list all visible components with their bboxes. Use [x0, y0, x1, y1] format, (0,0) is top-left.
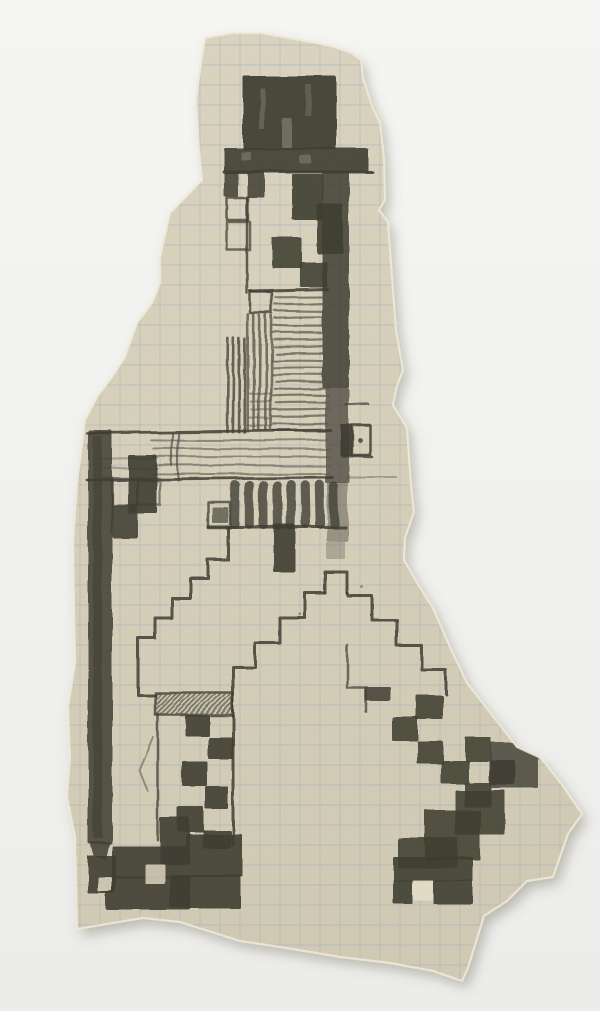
collar-block-mid — [247, 172, 265, 198]
left-leg-check-4 — [205, 786, 228, 809]
right-hand-dot — [358, 438, 363, 443]
sketch-canvas — [0, 0, 600, 1011]
left-foot-notch-1 — [98, 877, 112, 892]
left-foot-mass-4 — [160, 818, 190, 864]
hat-crown-streak-1 — [282, 118, 292, 148]
speck-1 — [299, 613, 302, 616]
hat-brim-speck-2 — [299, 155, 311, 163]
belt-left-dark — [212, 507, 228, 523]
left-foot-mass-6 — [170, 874, 240, 908]
staff-core — [93, 436, 102, 838]
right-leg-check-3 — [417, 741, 443, 764]
right-foot-tab-1 — [393, 880, 412, 904]
right-leg-check-0 — [365, 687, 391, 701]
collar-block-left — [224, 172, 238, 197]
speck-2 — [361, 586, 364, 589]
left-leg-check-3 — [182, 761, 207, 786]
right-leg-check-5 — [441, 760, 469, 784]
torso-top-line — [250, 289, 327, 291]
left-foot-notch-2 — [145, 864, 165, 884]
right-leg-check-2 — [392, 717, 418, 741]
left-foot-mass-5 — [186, 834, 242, 876]
scanned-sketch-page — [0, 0, 600, 1011]
right-foot-notch — [412, 880, 433, 900]
right-hand-dark — [340, 424, 352, 456]
chest-check-1 — [272, 238, 302, 268]
right-hand-top-line — [346, 404, 368, 405]
right-foot-bar — [393, 857, 473, 881]
chest-check-2 — [300, 262, 327, 287]
shoulder-band-scribble — [326, 542, 345, 559]
crotch-block — [273, 524, 295, 572]
hat-brim-speck-1 — [241, 152, 251, 160]
right-leg-check-4 — [465, 737, 491, 761]
left-leg-check-2 — [208, 737, 233, 759]
right-foot-tab-2 — [433, 880, 473, 904]
right-leg-check-1 — [416, 695, 443, 720]
left-hand-dark-1 — [128, 455, 157, 513]
left-hand-dark-2 — [112, 505, 137, 538]
hat-crown-streak-3 — [305, 84, 311, 116]
hat-crown-streak-2 — [260, 88, 265, 130]
right-hand-bottom-line — [343, 456, 372, 457]
left-leg-check-1 — [185, 715, 209, 736]
